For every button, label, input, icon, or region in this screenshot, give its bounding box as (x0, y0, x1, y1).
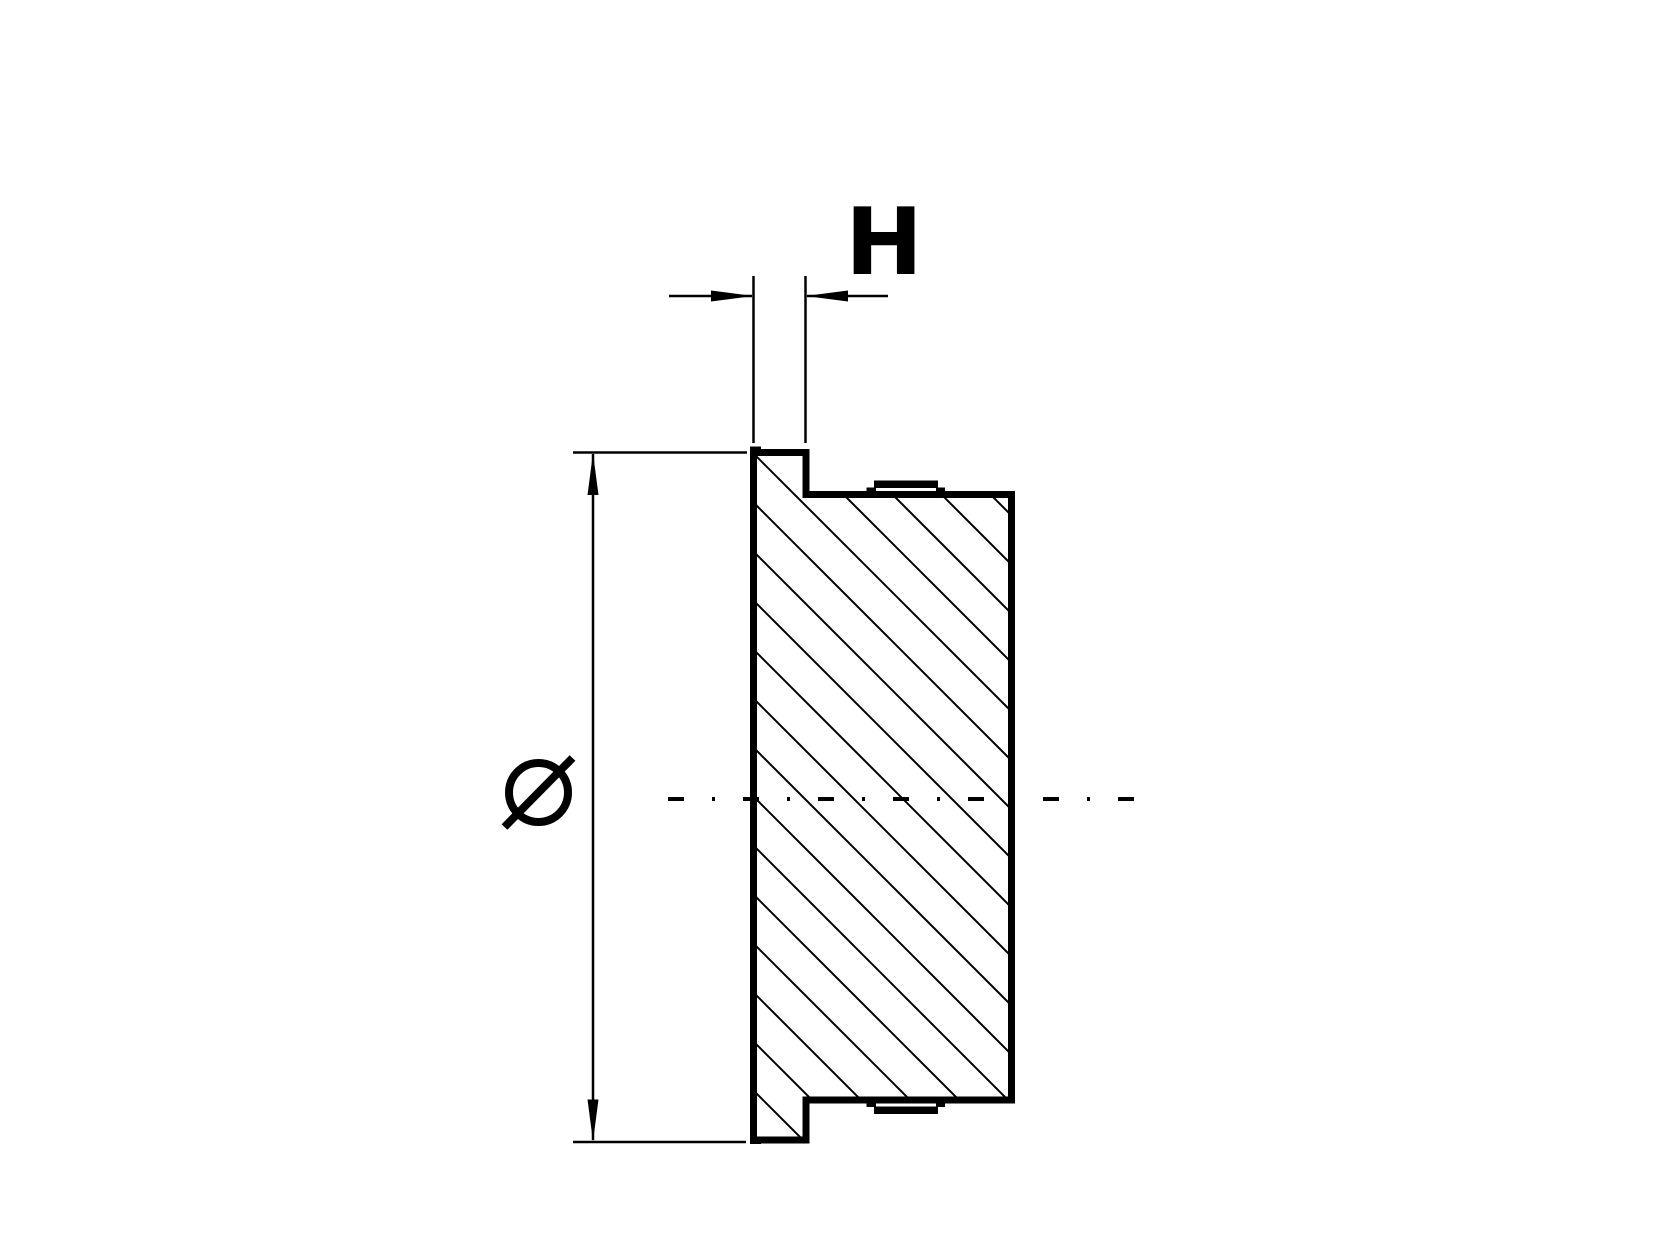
top-pad-slot (876, 488, 936, 491)
background (0, 0, 1680, 1260)
flange-lip-edge-bottom (750, 1137, 761, 1144)
bottom-pad-slot (876, 1104, 936, 1107)
flange-lip-edge-top (750, 447, 761, 454)
drawing-canvas: H (0, 0, 1680, 1260)
technical-drawing: H (0, 0, 1680, 1260)
top-face-pad (867, 481, 946, 498)
bottom-face-pad (867, 1098, 946, 1114)
height-dimension-label: H (845, 188, 923, 296)
